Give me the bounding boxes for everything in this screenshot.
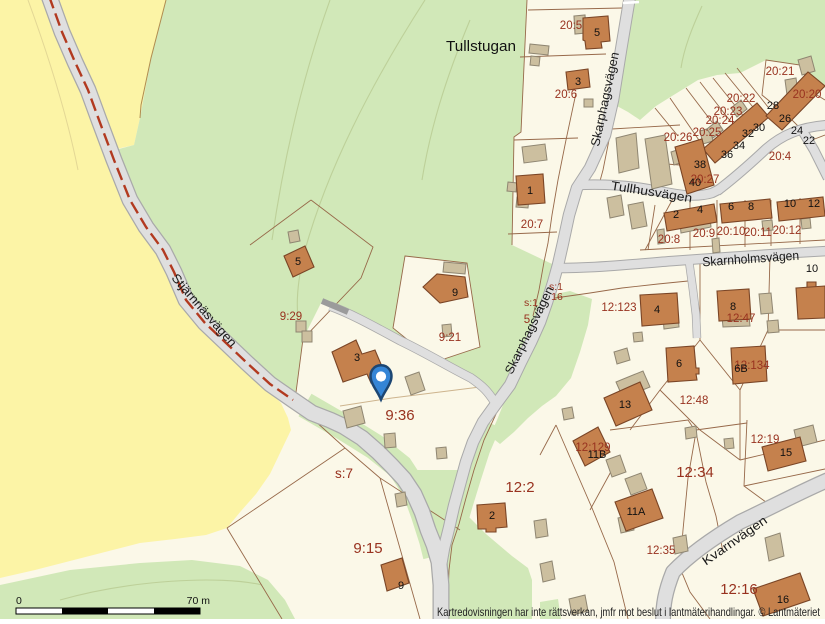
svg-text:11B: 11B: [588, 449, 607, 461]
svg-text:4: 4: [697, 204, 703, 216]
svg-text:12:19: 12:19: [751, 434, 780, 446]
svg-text:20:5: 20:5: [560, 20, 582, 32]
svg-text:12: 12: [808, 198, 820, 210]
svg-text:8: 8: [748, 201, 754, 213]
svg-text:12:2: 12:2: [505, 479, 534, 496]
svg-text:20:26: 20:26: [664, 132, 693, 144]
svg-text:20:9: 20:9: [693, 228, 715, 240]
svg-text:20:8: 20:8: [658, 234, 680, 246]
svg-text:34: 34: [733, 140, 745, 152]
svg-text:22: 22: [803, 135, 815, 147]
svg-text:5: 5: [594, 27, 600, 39]
svg-text:20:24: 20:24: [706, 115, 735, 127]
svg-text:20:7: 20:7: [521, 219, 543, 231]
svg-text:26: 26: [779, 113, 791, 125]
svg-text:1: 1: [527, 185, 533, 197]
svg-text:11A: 11A: [627, 506, 646, 518]
svg-text:15: 15: [780, 447, 792, 459]
svg-text:20:4: 20:4: [769, 151, 792, 163]
svg-text:9:36: 9:36: [385, 407, 414, 424]
svg-text:2: 2: [673, 209, 679, 221]
svg-text:Kartredovisningen har inte rät: Kartredovisningen har inte rättsverkan, …: [437, 605, 821, 619]
svg-text:2: 2: [489, 510, 495, 522]
svg-text:20:25: 20:25: [693, 127, 722, 139]
svg-text:20:20: 20:20: [793, 89, 822, 101]
svg-text:4: 4: [654, 304, 660, 316]
svg-text:20:10: 20:10: [717, 226, 746, 238]
svg-text:20:21: 20:21: [766, 66, 795, 78]
svg-text:3: 3: [354, 352, 360, 364]
svg-text:13: 13: [619, 399, 631, 411]
svg-text:30: 30: [753, 122, 765, 134]
svg-text:3: 3: [575, 76, 581, 88]
svg-text:s:7: s:7: [335, 466, 353, 481]
svg-text:9:15: 9:15: [353, 540, 382, 557]
svg-text:5: 5: [295, 256, 301, 268]
svg-text:12:48: 12:48: [680, 395, 709, 407]
svg-text:12:35: 12:35: [647, 545, 676, 557]
svg-text:0: 0: [16, 595, 22, 607]
svg-text:20:6: 20:6: [555, 89, 577, 101]
svg-text:10: 10: [806, 263, 818, 275]
svg-text:20:12: 20:12: [773, 225, 802, 237]
svg-text:12:47: 12:47: [727, 313, 756, 325]
svg-text:9: 9: [398, 580, 404, 592]
svg-text:12:34: 12:34: [676, 464, 714, 481]
svg-text:12:16: 12:16: [720, 581, 758, 598]
svg-text:36: 36: [721, 149, 733, 161]
svg-text:20:22: 20:22: [727, 93, 756, 105]
svg-text:6: 6: [728, 201, 734, 213]
svg-text:6B: 6B: [734, 363, 747, 375]
svg-text:9: 9: [452, 287, 458, 299]
svg-text:32: 32: [742, 128, 754, 140]
svg-text:12:123: 12:123: [601, 302, 636, 314]
svg-text:70 m: 70 m: [187, 595, 211, 607]
svg-text:28: 28: [767, 100, 779, 112]
svg-text:38: 38: [694, 159, 706, 171]
svg-text:9:29: 9:29: [280, 311, 302, 323]
svg-text:20:11: 20:11: [744, 227, 772, 239]
svg-text:40: 40: [689, 177, 701, 189]
svg-text:10: 10: [784, 198, 796, 210]
svg-text:8: 8: [730, 301, 736, 313]
svg-text:Tullstugan: Tullstugan: [446, 38, 516, 55]
svg-text:24: 24: [791, 125, 803, 137]
svg-text:9:21: 9:21: [439, 332, 461, 344]
svg-text:6: 6: [676, 358, 682, 370]
